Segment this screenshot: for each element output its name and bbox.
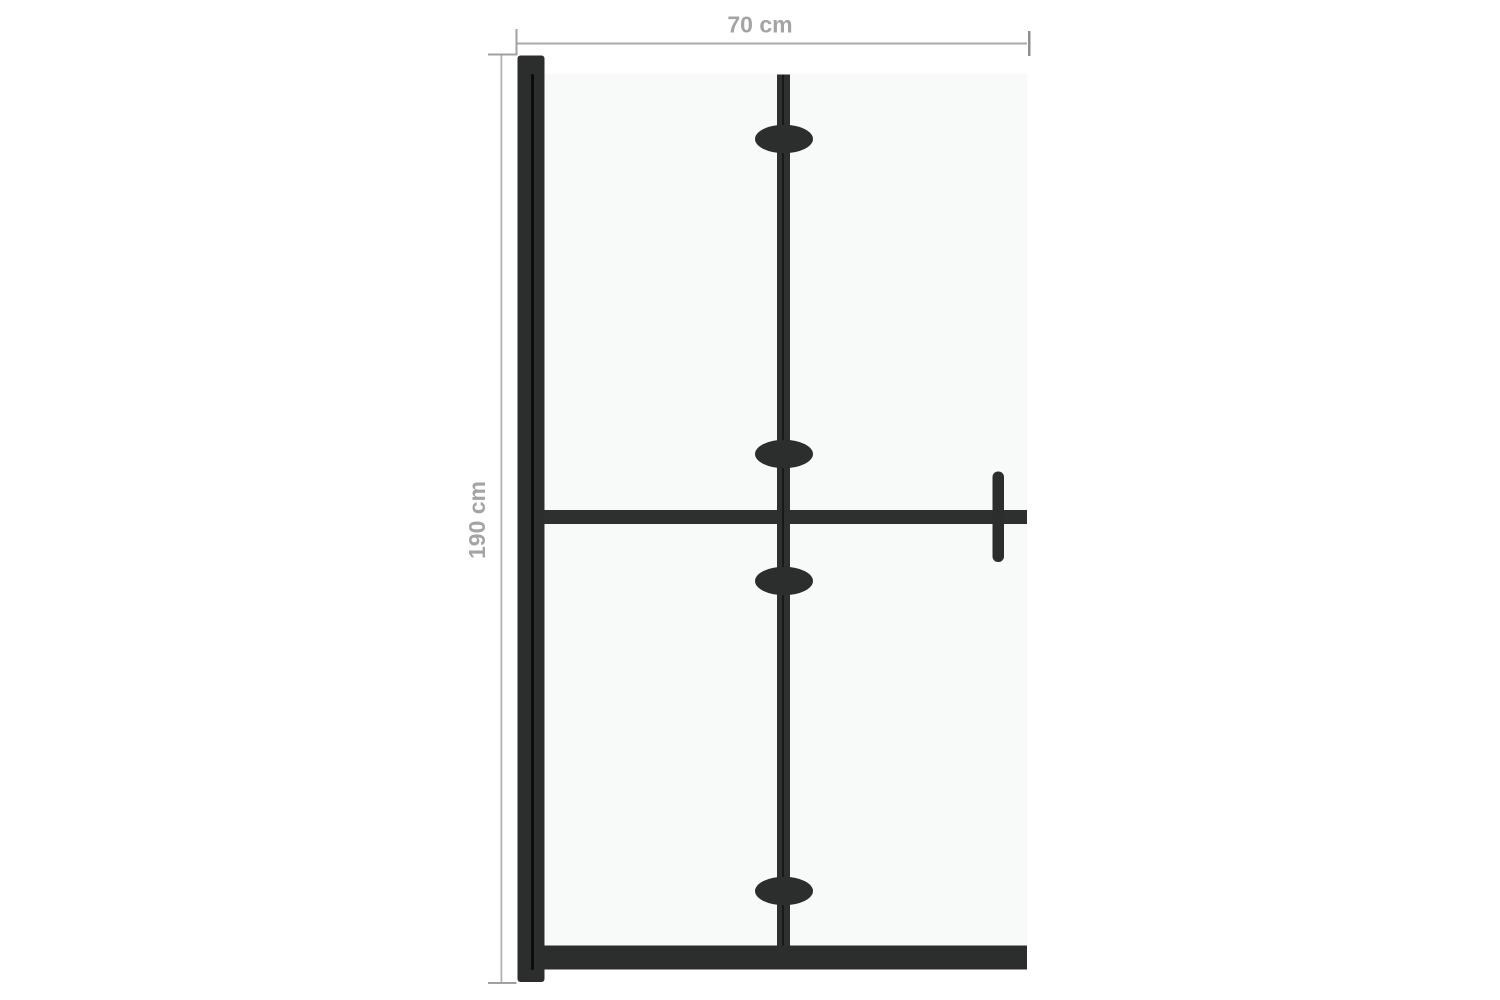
svg-text:190 cm: 190 cm	[464, 481, 490, 559]
svg-text:70 cm: 70 cm	[727, 12, 792, 38]
